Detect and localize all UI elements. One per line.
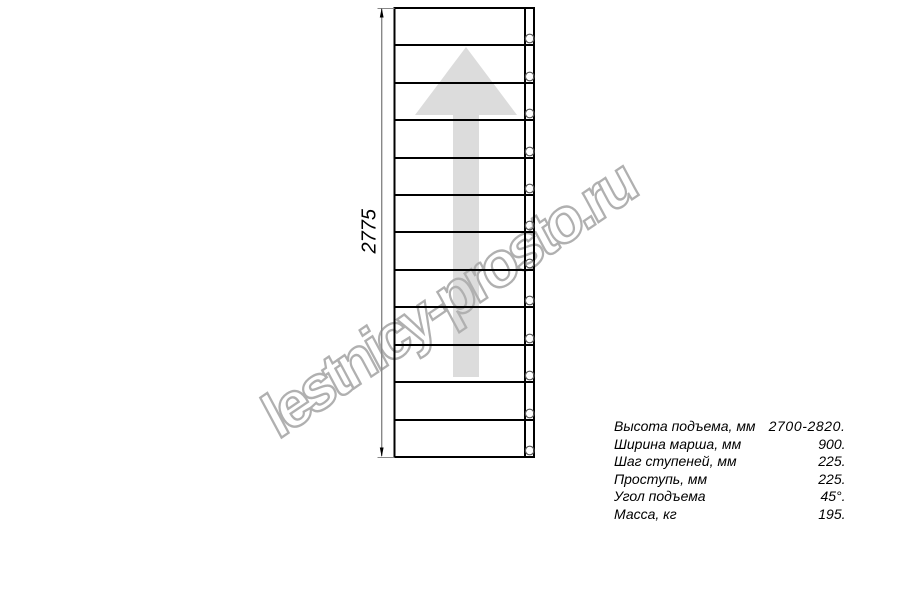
svg-text:2775: 2775 [359,208,381,254]
svg-text:lestnicy-prosto.ru: lestnicy-prosto.ru [252,146,646,452]
